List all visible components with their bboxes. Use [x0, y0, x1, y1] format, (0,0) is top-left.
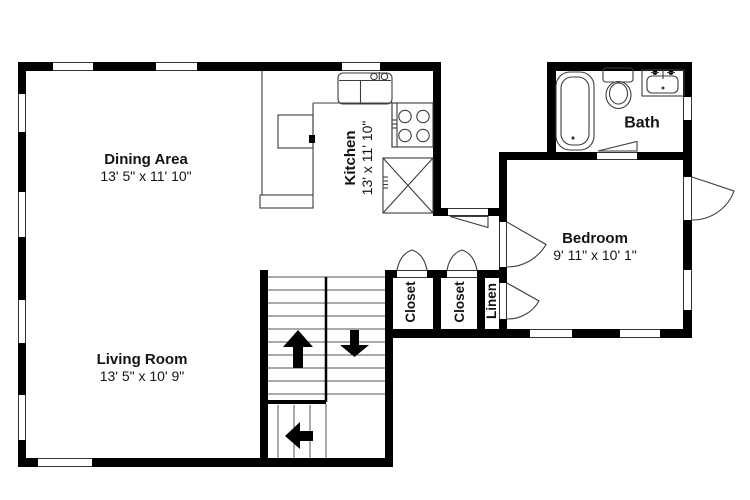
- floor-plan-drawing: [0, 0, 750, 500]
- bath-name: Bath: [624, 115, 660, 134]
- bedroom-name: Bedroom: [553, 230, 637, 247]
- label-closet-a: Closet: [403, 281, 419, 322]
- label-linen: Linen: [484, 283, 500, 319]
- floor-plan: Dining Area 13' 5" x 11' 10" Living Room…: [0, 0, 750, 500]
- label-living-room: Living Room 13' 5" x 10' 9": [97, 351, 188, 385]
- linen-name: Linen: [484, 283, 500, 319]
- stair-landing-edge: [268, 400, 326, 404]
- wall-bath-left: [547, 62, 556, 160]
- living-room-dims: 13' 5" x 10' 9": [97, 369, 188, 385]
- label-bedroom: Bedroom 9' 11" x 10' 1": [553, 230, 637, 264]
- bedroom-dims: 9' 11" x 10' 1": [553, 248, 637, 264]
- label-dining-area: Dining Area 13' 5" x 11' 10": [100, 151, 191, 185]
- closet-b-name: Closet: [452, 281, 468, 322]
- label-closet-b: Closet: [452, 281, 468, 322]
- wall-closet-divider-1: [433, 270, 441, 337]
- kitchen-dims: 13' x 11' 10": [360, 121, 376, 196]
- wall-stairs-left: [260, 270, 268, 467]
- kitchen-name: Kitchen: [342, 121, 359, 196]
- dining-area-name: Dining Area: [100, 151, 191, 168]
- label-bath: Bath: [624, 115, 660, 134]
- label-kitchen: Kitchen 13' x 11' 10": [342, 121, 376, 196]
- closet-a-name: Closet: [403, 281, 419, 322]
- wall-closet-left: [385, 270, 393, 467]
- wall-kitchen-right: [433, 62, 441, 216]
- dining-area-dims: 13' 5" x 11' 10": [100, 169, 191, 185]
- living-room-name: Living Room: [97, 351, 188, 368]
- wall-bath-bottom: [499, 152, 692, 160]
- background: [0, 0, 750, 500]
